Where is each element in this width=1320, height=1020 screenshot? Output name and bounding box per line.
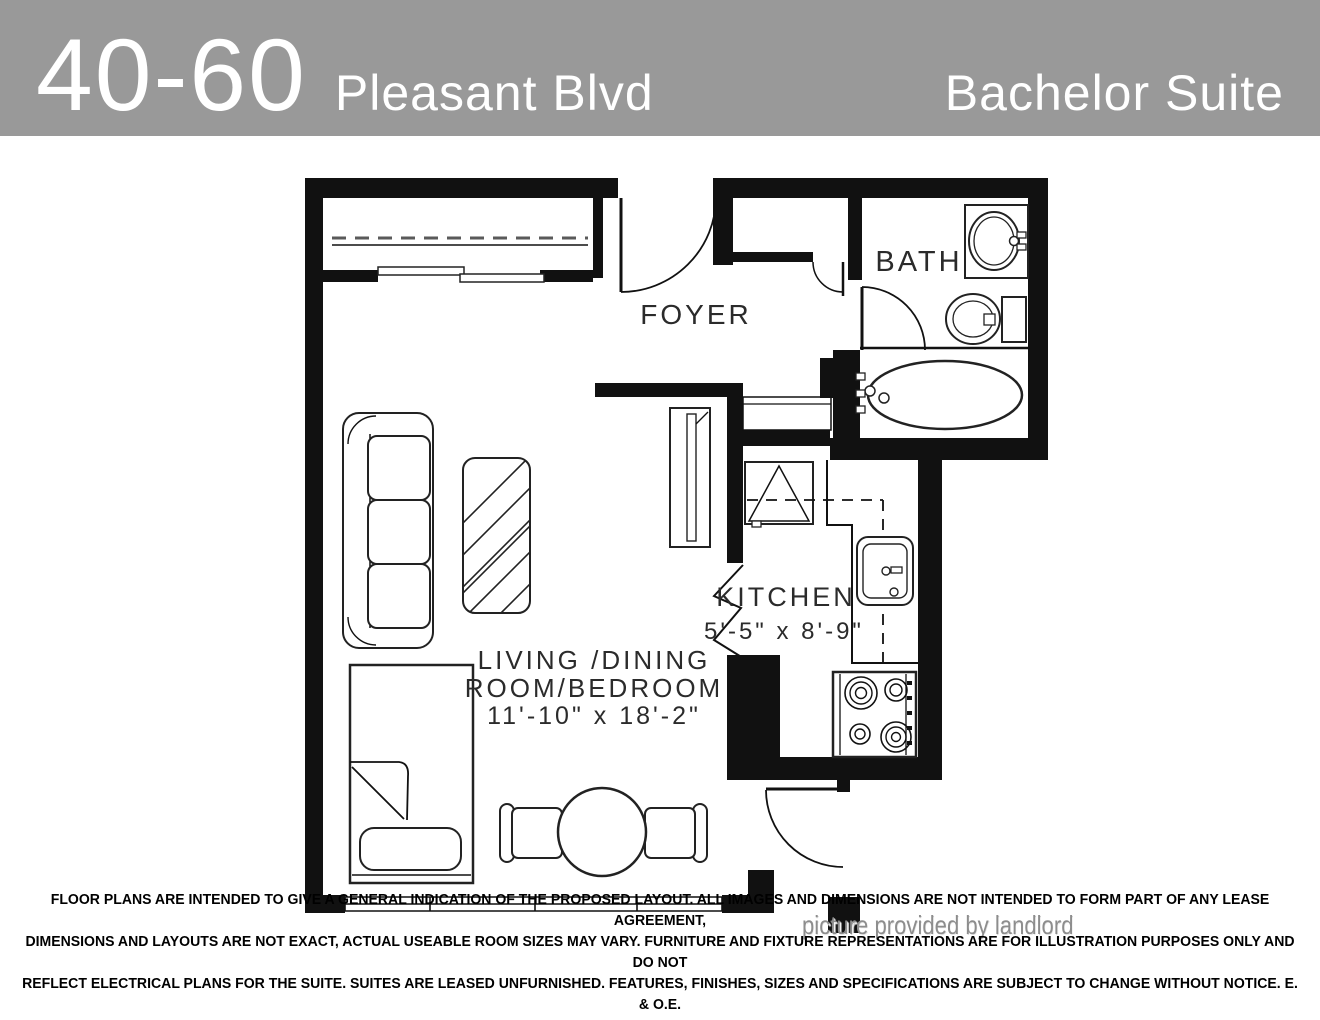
bathtub xyxy=(856,361,1022,429)
sofa xyxy=(343,413,433,648)
toilet xyxy=(946,294,1026,344)
kitchen-sink xyxy=(857,537,913,605)
chair-seat xyxy=(645,808,695,858)
stove xyxy=(833,672,916,757)
hall-closet xyxy=(743,397,831,430)
kitchen-dimensions: 5'-5" x 8'-9" xyxy=(704,618,864,645)
tv-unit xyxy=(670,408,710,547)
balcony-door xyxy=(766,789,843,867)
sliding-door-panel xyxy=(460,274,544,282)
chair-seat xyxy=(512,808,562,858)
foyer-closet-door xyxy=(813,262,843,296)
bed xyxy=(350,665,473,883)
floor-plan: FOYER BATH KITCHEN 5'-5" x 8'-9" LIVING … xyxy=(0,0,1320,1020)
foyer-label: FOYER xyxy=(640,299,751,330)
disclaimer-line2: DIMENSIONS AND LAYOUTS ARE NOT EXACT, AC… xyxy=(20,932,1300,974)
living-label-line1: LIVING /DINING xyxy=(478,645,711,675)
refrigerator xyxy=(745,462,813,527)
table-top xyxy=(558,788,646,876)
floorplan-page: 40-60 Pleasant Blvd Bachelor Suite xyxy=(0,0,1320,1020)
bath-label: BATH xyxy=(875,246,962,278)
living-dimensions: 11'-10" x 18'-2" xyxy=(487,702,701,730)
entry-door xyxy=(621,198,716,292)
living-label-line2: ROOM/BEDROOM xyxy=(465,673,723,703)
disclaimer-line3: REFLECT ELECTRICAL PLANS FOR THE SUITE. … xyxy=(20,974,1300,1016)
dining-table xyxy=(500,788,707,876)
bathroom xyxy=(856,205,1028,429)
bathroom-sink xyxy=(965,205,1028,278)
bathroom-door xyxy=(862,287,925,350)
disclaimer: FLOOR PLANS ARE INTENDED TO GIVE A GENER… xyxy=(20,890,1300,1016)
sliding-door-panel xyxy=(378,267,464,275)
disclaimer-line1: FLOOR PLANS ARE INTENDED TO GIVE A GENER… xyxy=(20,890,1300,932)
kitchen-label: KITCHEN xyxy=(716,582,856,612)
pillow xyxy=(360,828,461,870)
